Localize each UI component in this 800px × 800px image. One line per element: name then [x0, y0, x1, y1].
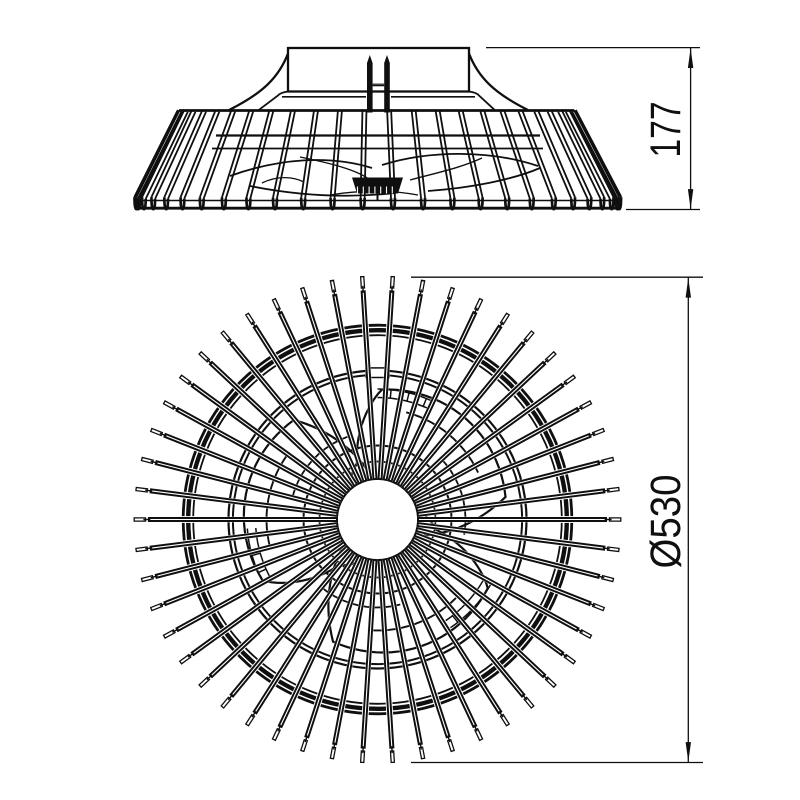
svg-text:Ø530: Ø530 — [643, 475, 690, 569]
svg-text:177: 177 — [643, 102, 690, 158]
